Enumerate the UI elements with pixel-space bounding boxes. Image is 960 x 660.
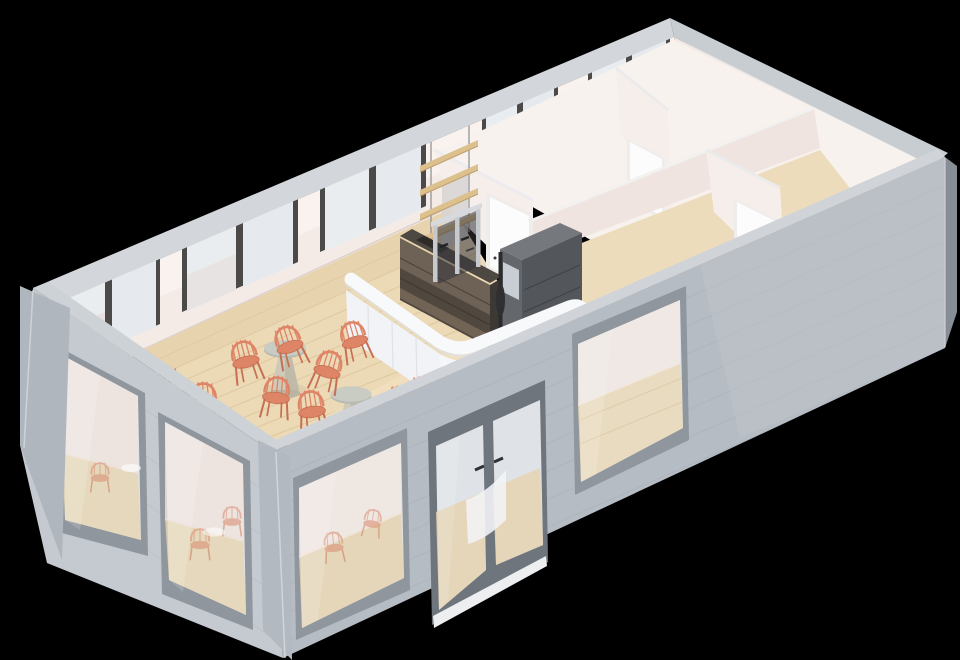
building-exterior (20, 149, 957, 660)
entrance-double-door (428, 380, 548, 628)
cafe-chair (227, 337, 265, 386)
interior-door (627, 138, 665, 221)
interior-door (734, 198, 778, 280)
espresso-back-counter (400, 229, 502, 348)
partition-wall-long (520, 108, 820, 258)
cafe-chair (336, 317, 374, 365)
isometric-floorplan-render (0, 0, 960, 660)
cafe-floor (52, 208, 592, 446)
cafe-table (331, 386, 372, 442)
storefront-window (158, 412, 253, 630)
floor-shading (838, 224, 930, 274)
window-icon (694, 58, 742, 144)
counter-sink (416, 236, 449, 253)
right-wall-edge (945, 157, 957, 348)
cafe-chair (260, 374, 292, 420)
partition-wall (706, 150, 786, 282)
back-left-wall (60, 37, 678, 388)
facade-front (272, 157, 945, 658)
cafe-chair (270, 321, 310, 371)
backroom-wood-floor (533, 150, 864, 340)
window-icon (482, 72, 558, 180)
window-icon (588, 25, 670, 135)
service-counter (346, 279, 589, 428)
cafe-tables (263, 340, 373, 443)
espresso-machine (431, 203, 482, 284)
backrooms-floor (436, 40, 930, 268)
cafe-chairs (151, 317, 436, 483)
floor-planks (64, 208, 578, 445)
window-icon (182, 188, 298, 312)
parapet-caps (33, 18, 948, 302)
building-interior (52, 25, 932, 483)
interior-door (486, 192, 533, 292)
storefront-window (55, 345, 148, 556)
window-icon (58, 252, 160, 368)
cafe-chair (377, 383, 415, 432)
cafe-chair (332, 413, 364, 459)
cafe-table (264, 340, 306, 398)
back-right-wall (674, 37, 932, 226)
render-canvas (0, 0, 960, 660)
cafe-chair (295, 388, 329, 435)
gray-cabinet (500, 223, 582, 348)
storefront-window (572, 286, 689, 495)
floor-lamp (494, 252, 508, 351)
menu-board (442, 174, 468, 250)
back-wall-windows (58, 25, 670, 368)
cafe-chair (151, 365, 185, 413)
wall-shelves (420, 112, 478, 248)
facade-left (20, 288, 283, 658)
front-parapet-caps (33, 149, 945, 452)
cafe-partition-wall (420, 112, 533, 292)
cafe-chair (308, 347, 347, 397)
cafe-chair (169, 435, 201, 483)
window-icon (320, 132, 426, 252)
storefront-window (293, 428, 410, 640)
corner-posts (20, 158, 945, 660)
partition-wall (616, 68, 672, 222)
cafe-chair (400, 374, 436, 421)
cafe-chair (188, 381, 219, 426)
